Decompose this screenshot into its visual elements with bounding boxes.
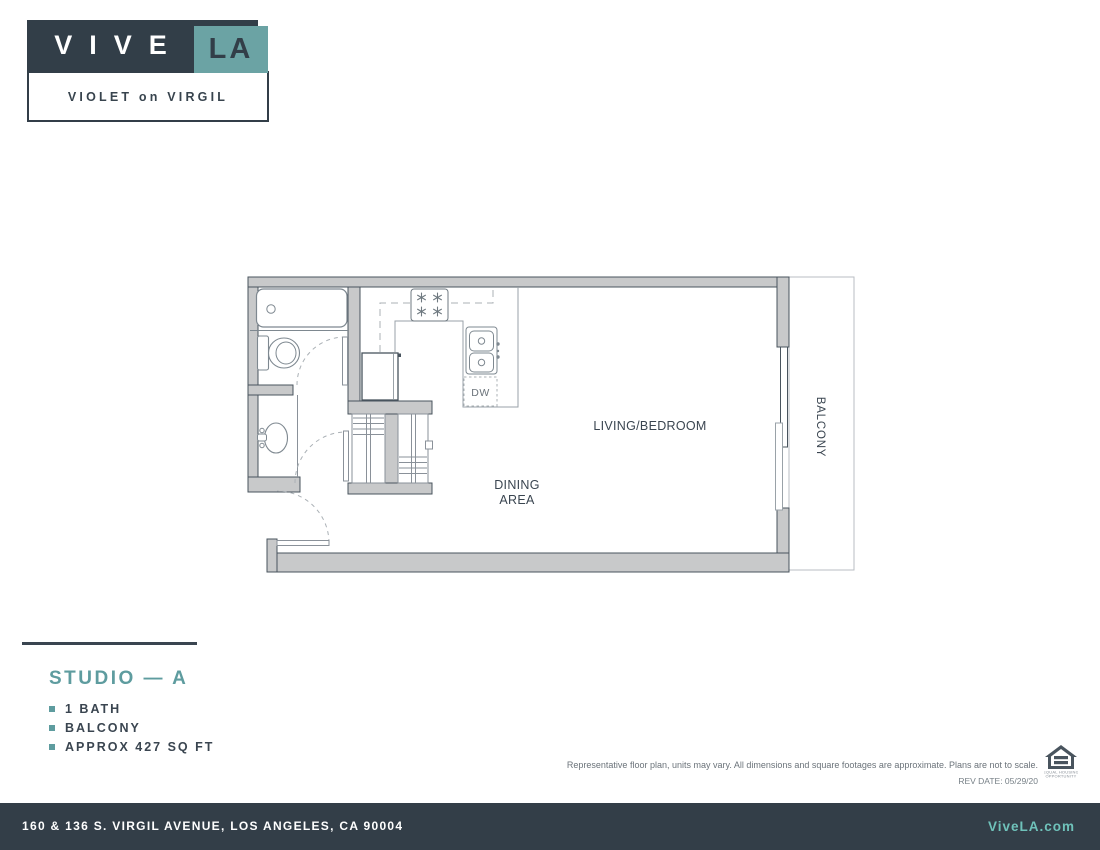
bathroom-fixtures [250, 289, 348, 477]
refrigerator-handle [398, 354, 402, 358]
refrigerator [362, 353, 398, 400]
door-swing-arc [297, 337, 345, 385]
wall-segment [385, 414, 398, 483]
stove [411, 289, 448, 321]
faucet-handle [260, 428, 264, 432]
footer-address: 160 & 136 S. VIRGIL AVENUE, LOS ANGELES,… [22, 803, 403, 850]
equal-housing-text: OPPORTUNITY [1045, 774, 1076, 779]
closet-door-leaf [344, 431, 349, 481]
balcony-label: BALCONY [814, 397, 826, 458]
bathroom-door-leaf [343, 337, 348, 385]
wall-segment [348, 287, 360, 401]
closet-left [352, 414, 385, 483]
feature-list: 1 BATH BALCONY APPROX 427 SQ FT [49, 699, 214, 756]
feature-label: BALCONY [65, 721, 141, 735]
feature-label: APPROX 427 SQ FT [65, 740, 214, 754]
wall-segment [248, 277, 789, 287]
dining-label-line2: AREA [499, 493, 535, 507]
dishwasher-label: DW [471, 387, 490, 399]
floor-plan-sheet: VIVE LA VIOLET on VIRGIL [0, 0, 1100, 850]
sliding-door-panel [776, 423, 783, 510]
equal-housing-icon: EQUAL HOUSING OPPORTUNITY [1044, 744, 1078, 778]
sink-faucet [497, 350, 499, 352]
footer-bar: 160 & 136 S. VIRGIL AVENUE, LOS ANGELES,… [0, 803, 1100, 850]
equals-bar [1054, 761, 1068, 764]
list-item: APPROX 427 SQ FT [49, 737, 214, 756]
closet-door-jamb [426, 441, 433, 449]
rev-date: REV DATE: 05/29/20 [567, 776, 1038, 786]
feature-bullet [49, 744, 55, 750]
dining-label-line1: DINING [494, 478, 540, 492]
feature-label: 1 BATH [65, 702, 121, 716]
wall-segment [348, 401, 432, 414]
brand-logo-accent: LA [194, 26, 268, 73]
faucet-handle [260, 443, 264, 447]
entry-door-leaf [277, 541, 329, 546]
sliding-door [776, 347, 788, 510]
wall-segment [777, 277, 789, 347]
kitchen: DW [362, 287, 518, 407]
wall-segment [248, 385, 293, 395]
door-swing-arc [295, 432, 346, 483]
disclaimer: Representative floor plan, units may var… [567, 760, 1038, 786]
unit-title: STUDIO — A [49, 668, 188, 690]
sink-faucet [496, 342, 499, 345]
wall-segment [277, 553, 789, 572]
bathtub [257, 289, 348, 327]
details-divider [22, 642, 197, 645]
vanity-sink [265, 423, 288, 453]
disclaimer-text: Representative floor plan, units may var… [567, 760, 1038, 770]
wall-segment [267, 539, 277, 572]
feature-bullet [49, 725, 55, 731]
faucet [258, 434, 267, 441]
closet-right [398, 414, 428, 483]
toilet-tank [258, 336, 269, 370]
wall-segment [348, 483, 432, 494]
equals-bar [1054, 756, 1068, 759]
living-bedroom-label: LIVING/BEDROOM [593, 419, 706, 433]
feature-bullet [49, 706, 55, 712]
list-item: BALCONY [49, 718, 214, 737]
sink-faucet [496, 355, 499, 358]
website-link[interactable]: ViveLA.com [988, 803, 1075, 850]
door-swing-arc [277, 491, 329, 543]
wall-segment [248, 477, 300, 492]
list-item: 1 BATH [49, 699, 214, 718]
